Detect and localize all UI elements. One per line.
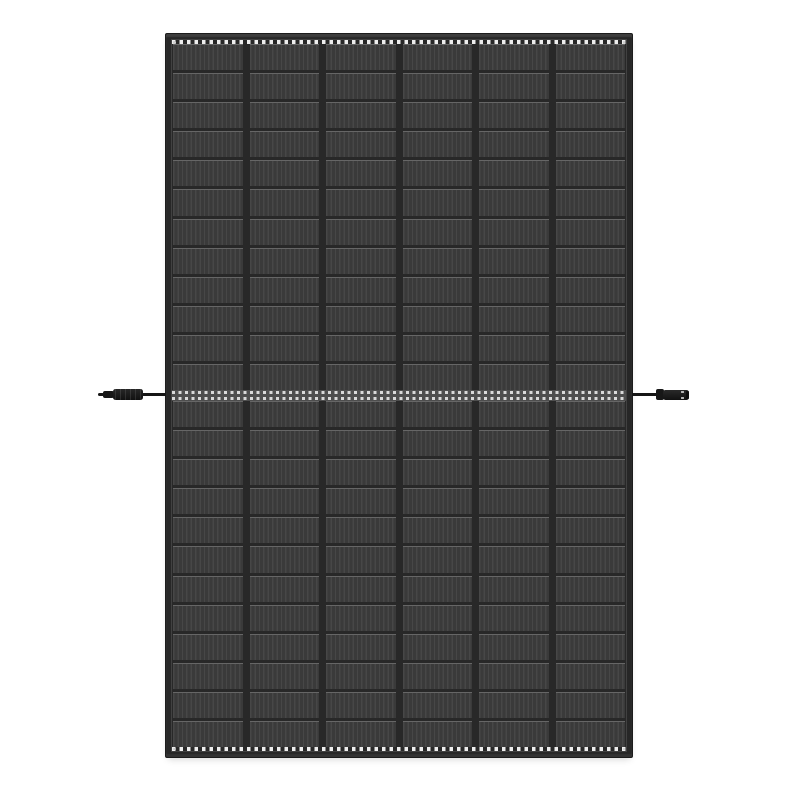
solar-cell bbox=[556, 605, 626, 631]
solar-cell bbox=[173, 634, 243, 660]
solar-cell bbox=[403, 160, 473, 186]
solar-cell bbox=[556, 517, 626, 543]
solar-cell bbox=[326, 306, 396, 332]
solar-cell bbox=[479, 364, 549, 390]
solar-cell bbox=[479, 605, 549, 631]
solar-cell bbox=[173, 488, 243, 514]
solar-cell bbox=[326, 160, 396, 186]
solar-cell bbox=[556, 131, 626, 157]
corner-pin-icon bbox=[623, 748, 626, 751]
solar-cell bbox=[556, 335, 626, 361]
solar-cell bbox=[173, 517, 243, 543]
solar-cell bbox=[326, 131, 396, 157]
solar-cell bbox=[556, 102, 626, 128]
solar-cell bbox=[173, 189, 243, 215]
solar-cell bbox=[173, 160, 243, 186]
lower-cell-half bbox=[172, 401, 626, 747]
solar-cell bbox=[326, 189, 396, 215]
solar-cell bbox=[403, 605, 473, 631]
solar-cell bbox=[250, 364, 320, 390]
corner-pin-icon bbox=[173, 748, 176, 751]
solar-cell bbox=[479, 721, 549, 747]
solar-cell bbox=[479, 277, 549, 303]
solar-cell bbox=[556, 634, 626, 660]
solar-cell bbox=[403, 44, 473, 70]
solar-cell bbox=[479, 102, 549, 128]
solar-cell bbox=[326, 517, 396, 543]
solar-cell bbox=[556, 576, 626, 602]
solar-cell bbox=[250, 430, 320, 456]
solar-cell bbox=[250, 277, 320, 303]
solar-cell bbox=[403, 364, 473, 390]
solar-cell bbox=[403, 721, 473, 747]
solar-cell bbox=[403, 517, 473, 543]
solar-cell bbox=[250, 335, 320, 361]
cell-laminate-area bbox=[172, 40, 626, 751]
solar-cell bbox=[250, 692, 320, 718]
solar-cell bbox=[250, 663, 320, 689]
connector-clip bbox=[681, 397, 684, 399]
solar-cell bbox=[479, 219, 549, 245]
solar-cell bbox=[326, 73, 396, 99]
solar-cell bbox=[250, 248, 320, 274]
solar-cell bbox=[173, 102, 243, 128]
solar-cell bbox=[326, 663, 396, 689]
solar-cell bbox=[326, 44, 396, 70]
solar-cell bbox=[173, 335, 243, 361]
solar-cell bbox=[250, 73, 320, 99]
solar-cell bbox=[250, 546, 320, 572]
solar-cell bbox=[173, 131, 243, 157]
solar-cell bbox=[556, 306, 626, 332]
solar-cell bbox=[556, 160, 626, 186]
right-output-cable bbox=[632, 393, 659, 397]
solar-cell bbox=[250, 306, 320, 332]
solar-cell bbox=[479, 459, 549, 485]
solar-cell bbox=[173, 459, 243, 485]
solar-cell bbox=[326, 546, 396, 572]
solar-cell bbox=[173, 576, 243, 602]
solar-cell bbox=[250, 160, 320, 186]
solar-cell bbox=[403, 430, 473, 456]
solar-cell bbox=[479, 401, 549, 427]
solar-cell bbox=[250, 488, 320, 514]
solar-cell bbox=[479, 663, 549, 689]
solar-cell bbox=[556, 248, 626, 274]
solar-cell bbox=[326, 430, 396, 456]
solar-cell bbox=[403, 488, 473, 514]
solar-cell bbox=[479, 306, 549, 332]
solar-cell bbox=[479, 576, 549, 602]
solar-cell bbox=[403, 102, 473, 128]
solar-cell bbox=[556, 488, 626, 514]
connector-end-cap bbox=[686, 391, 689, 399]
solar-panel-module bbox=[165, 33, 633, 758]
solar-cell bbox=[403, 277, 473, 303]
solar-cell bbox=[556, 430, 626, 456]
left-output-cable bbox=[140, 393, 166, 397]
solar-cell bbox=[250, 102, 320, 128]
solar-cell bbox=[250, 576, 320, 602]
solar-cell bbox=[173, 401, 243, 427]
solar-cell bbox=[403, 306, 473, 332]
solar-cell bbox=[556, 219, 626, 245]
solar-cell bbox=[173, 306, 243, 332]
solar-cell bbox=[479, 189, 549, 215]
solar-cell bbox=[403, 189, 473, 215]
solar-cell bbox=[250, 634, 320, 660]
solar-cell bbox=[479, 131, 549, 157]
solar-cell bbox=[173, 44, 243, 70]
solar-cell bbox=[479, 73, 549, 99]
solar-cell bbox=[556, 44, 626, 70]
solar-cell bbox=[479, 488, 549, 514]
solar-cell bbox=[326, 248, 396, 274]
connector-body bbox=[113, 389, 143, 400]
solar-cell bbox=[556, 189, 626, 215]
solar-cell bbox=[326, 605, 396, 631]
solar-cell bbox=[403, 692, 473, 718]
solar-cell bbox=[403, 663, 473, 689]
corner-pin-icon bbox=[173, 41, 176, 44]
solar-cell bbox=[403, 401, 473, 427]
solar-cell bbox=[403, 576, 473, 602]
solar-cell bbox=[479, 692, 549, 718]
solar-cell bbox=[326, 459, 396, 485]
connector-clip bbox=[681, 391, 684, 393]
solar-cell bbox=[326, 721, 396, 747]
solar-cell bbox=[403, 546, 473, 572]
solar-cell bbox=[403, 219, 473, 245]
solar-cell bbox=[250, 721, 320, 747]
solar-cell bbox=[556, 721, 626, 747]
solar-cell bbox=[173, 277, 243, 303]
upper-cell-half bbox=[172, 44, 626, 390]
solar-cell bbox=[479, 248, 549, 274]
solar-cell bbox=[326, 102, 396, 128]
solar-cell bbox=[479, 430, 549, 456]
solar-cell bbox=[326, 488, 396, 514]
solar-cell bbox=[403, 634, 473, 660]
solar-cell bbox=[173, 248, 243, 274]
bottom-solder-ribbon bbox=[172, 747, 626, 751]
solar-cell bbox=[479, 634, 549, 660]
solar-cell bbox=[556, 277, 626, 303]
solar-cell bbox=[250, 605, 320, 631]
solar-cell bbox=[556, 459, 626, 485]
solar-cell bbox=[556, 364, 626, 390]
corner-pin-icon bbox=[623, 41, 626, 44]
solar-cell bbox=[326, 335, 396, 361]
solar-cell bbox=[479, 335, 549, 361]
solar-cell bbox=[326, 401, 396, 427]
solar-cell bbox=[326, 277, 396, 303]
solar-cell bbox=[403, 131, 473, 157]
solar-cell bbox=[173, 605, 243, 631]
solar-cell bbox=[479, 160, 549, 186]
product-photo-solar-panel bbox=[0, 0, 800, 800]
solar-cell bbox=[173, 721, 243, 747]
solar-cell bbox=[403, 248, 473, 274]
solar-cell bbox=[556, 401, 626, 427]
solar-cell bbox=[250, 401, 320, 427]
solar-cell bbox=[326, 219, 396, 245]
solar-cell bbox=[173, 219, 243, 245]
solar-cell bbox=[173, 692, 243, 718]
solar-cell bbox=[403, 335, 473, 361]
solar-cell bbox=[556, 546, 626, 572]
solar-cell bbox=[326, 576, 396, 602]
solar-cell bbox=[403, 459, 473, 485]
solar-cell bbox=[250, 44, 320, 70]
solar-cell bbox=[250, 219, 320, 245]
solar-cell bbox=[556, 663, 626, 689]
solar-cell bbox=[173, 663, 243, 689]
solar-cell bbox=[173, 546, 243, 572]
solar-cell bbox=[403, 73, 473, 99]
solar-cell bbox=[326, 634, 396, 660]
solar-cell bbox=[173, 73, 243, 99]
solar-cell bbox=[326, 692, 396, 718]
solar-cell bbox=[250, 459, 320, 485]
solar-cell bbox=[479, 546, 549, 572]
solar-cell bbox=[326, 364, 396, 390]
solar-cell bbox=[250, 189, 320, 215]
solar-cell bbox=[556, 692, 626, 718]
solar-cell bbox=[479, 517, 549, 543]
solar-cell bbox=[250, 517, 320, 543]
solar-cell bbox=[479, 44, 549, 70]
solar-cell bbox=[173, 364, 243, 390]
solar-cell bbox=[556, 73, 626, 99]
solar-cell bbox=[173, 430, 243, 456]
solar-cell bbox=[250, 131, 320, 157]
center-interconnect-band bbox=[172, 390, 626, 401]
